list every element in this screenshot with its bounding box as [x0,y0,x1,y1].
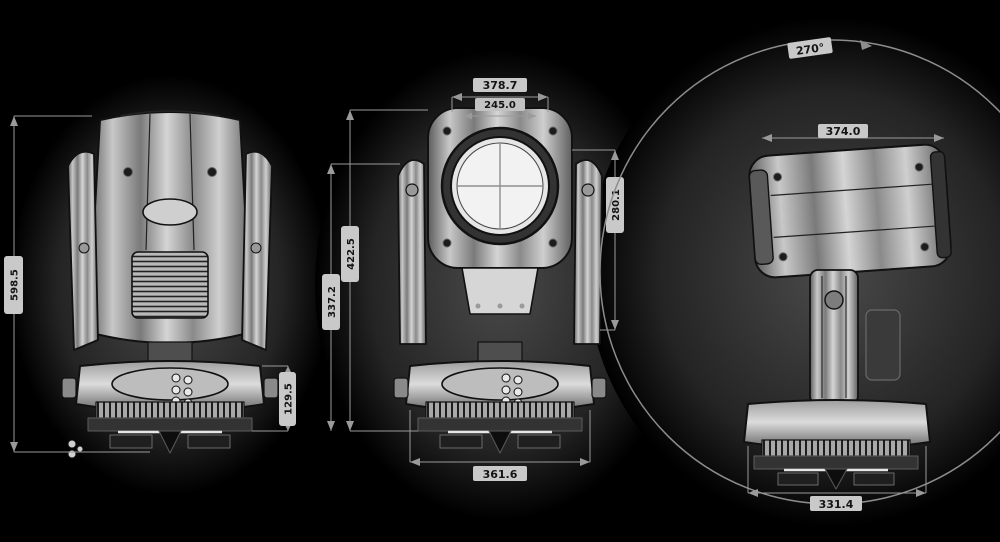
lens-base-fins [426,402,574,418]
front-head-screw-left [124,168,133,177]
front-base-height-label: 129.5 [284,383,295,415]
front-grille [132,252,208,318]
front-foot-left [110,435,152,448]
fixture-three-view-drawing: 598.5 129.5 [0,0,1000,542]
lens-base-lip [418,418,582,431]
front-base-lip [88,418,252,431]
lens-head-width-label: 378.7 [483,79,518,92]
lens-foot-left [440,435,482,448]
lens-overall-height-label: 422.5 [346,238,357,270]
front-logo-oval [143,199,197,225]
front-head-screw-right [208,168,217,177]
lens-foot-right [518,435,560,448]
drawing-canvas: 598.5 129.5 [0,0,1000,542]
side-foot-left [778,473,818,485]
side-foot-right [854,473,894,485]
front-neck [148,342,192,362]
lens-base-width-label: 361.6 [483,468,518,481]
side-base-lip [754,456,918,469]
side-arm [810,270,858,404]
lens-head-height-label: 280.1 [611,189,622,221]
side-base-depth-label: 331.4 [819,498,854,511]
side-head-depth-label: 374.0 [826,125,861,138]
lens-neck [478,342,522,362]
front-foot-right [188,435,230,448]
lens-base-ring [442,368,558,400]
lens-arm-height-label: 337.2 [327,286,338,318]
front-base-fins [96,402,244,418]
lens-lens-width-label: 245.0 [484,100,516,111]
front-base-ring [112,368,228,400]
side-base-fins [762,440,910,456]
front-overall-height-label: 598.5 [10,269,21,301]
